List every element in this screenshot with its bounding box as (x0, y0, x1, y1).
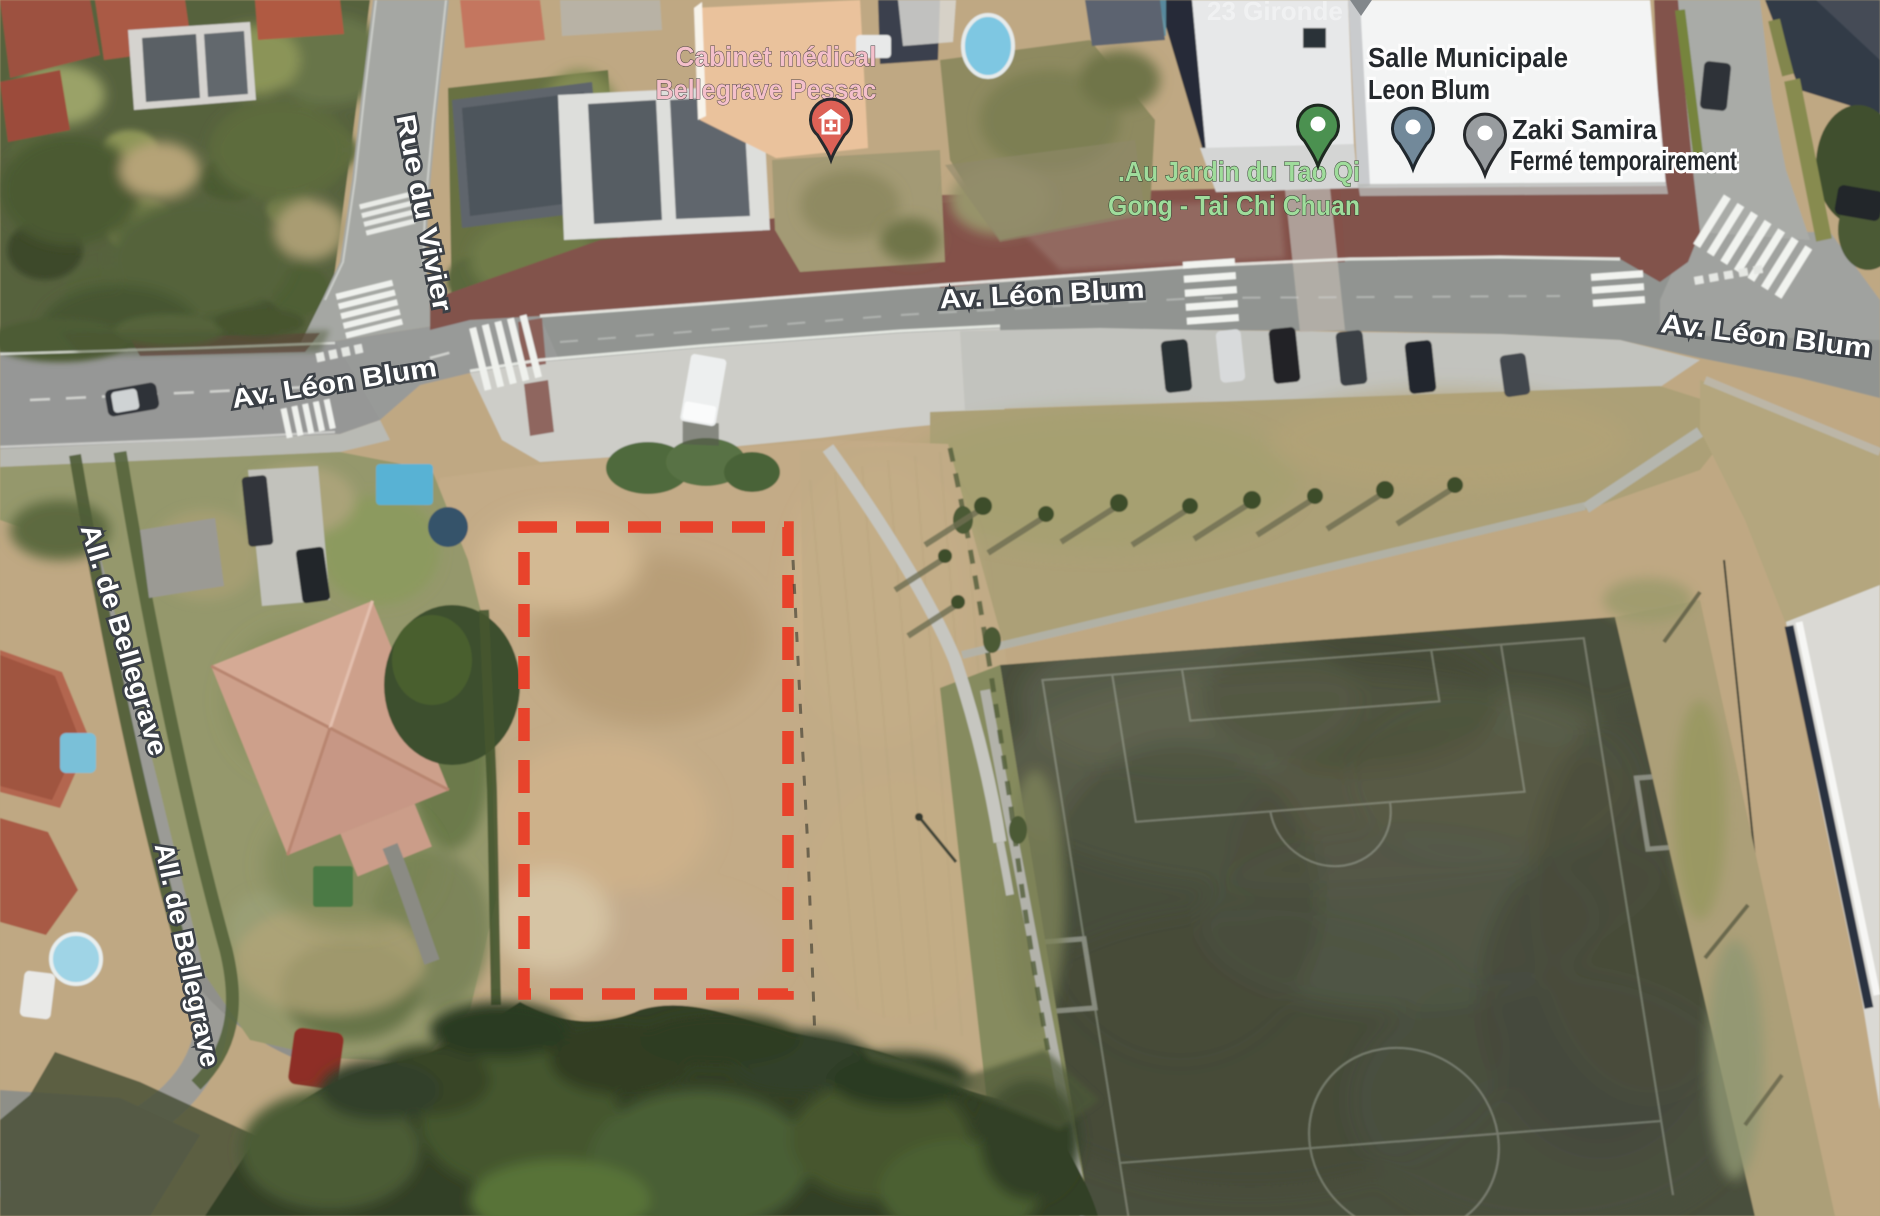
svg-text:Fermé temporairement: Fermé temporairement (1510, 145, 1737, 176)
svg-text:.Au Jardin du Tao Qi: .Au Jardin du Tao Qi (1118, 156, 1360, 187)
svg-text:Gong - Tai Chi Chuan: Gong - Tai Chi Chuan (1108, 190, 1360, 221)
svg-text:Leon Blum: Leon Blum (1368, 74, 1490, 105)
svg-text:Salle Municipale: Salle Municipale (1368, 42, 1568, 73)
svg-text:Bellegrave Pessac: Bellegrave Pessac (656, 74, 877, 105)
svg-text:23 Gironde: 23 Gironde (1207, 0, 1343, 26)
svg-text:Zaki Samira: Zaki Samira (1512, 114, 1657, 145)
svg-text:Cabinet médical: Cabinet médical (676, 41, 877, 72)
